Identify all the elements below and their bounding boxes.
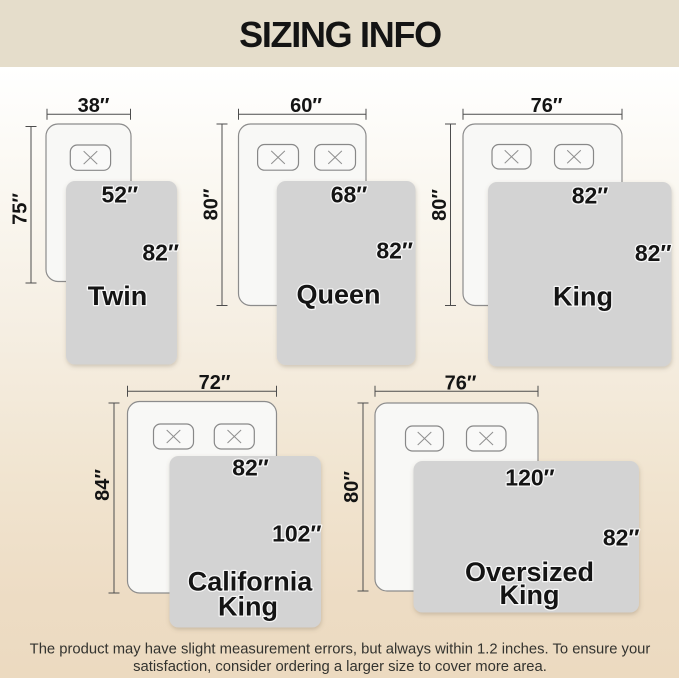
svg-text:120″: 120″ bbox=[505, 465, 554, 491]
svg-text:King: King bbox=[553, 282, 613, 312]
svg-text:75″: 75″ bbox=[10, 193, 32, 225]
svg-text:82″: 82″ bbox=[376, 238, 413, 264]
svg-text:82″: 82″ bbox=[603, 525, 640, 551]
svg-text:102″: 102″ bbox=[272, 521, 321, 547]
svg-text:SIZING INFO: SIZING INFO bbox=[239, 14, 441, 55]
svg-text:Twin: Twin bbox=[88, 281, 147, 311]
svg-text:72″: 72″ bbox=[199, 372, 231, 394]
svg-text:The product may have slight me: The product may have slight measurement … bbox=[30, 642, 651, 658]
svg-text:80″: 80″ bbox=[341, 471, 363, 503]
svg-text:King: King bbox=[218, 592, 278, 622]
svg-text:82″: 82″ bbox=[232, 455, 269, 481]
svg-text:38″: 38″ bbox=[78, 95, 110, 117]
svg-text:68″: 68″ bbox=[331, 182, 368, 208]
svg-text:82″: 82″ bbox=[572, 183, 609, 209]
svg-text:Queen: Queen bbox=[296, 280, 380, 310]
svg-text:82″: 82″ bbox=[635, 240, 672, 266]
svg-text:76″: 76″ bbox=[445, 373, 477, 395]
svg-text:60″: 60″ bbox=[290, 95, 322, 117]
svg-text:80″: 80″ bbox=[429, 189, 451, 221]
svg-text:76″: 76″ bbox=[531, 95, 563, 117]
svg-text:84″: 84″ bbox=[92, 469, 114, 501]
svg-text:80″: 80″ bbox=[201, 188, 223, 220]
svg-text:82″: 82″ bbox=[142, 240, 179, 266]
svg-text:52″: 52″ bbox=[101, 182, 138, 208]
svg-text:King: King bbox=[500, 580, 560, 610]
svg-text:satisfaction, consider orderin: satisfaction, consider ordering a larger… bbox=[133, 659, 547, 675]
